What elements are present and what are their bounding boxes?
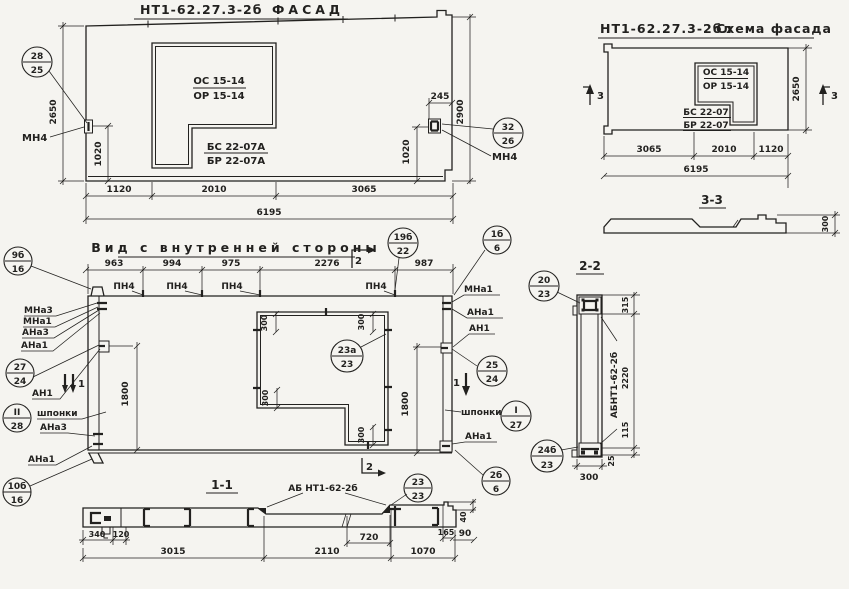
svg-text:2б: 2б: [490, 470, 503, 481]
facade-dim-left-height: 2650: [49, 22, 84, 185]
pn-label: ПН4: [113, 282, 134, 292]
svg-text:25: 25: [486, 361, 499, 371]
section-2-2-callout-20: 20 23: [529, 271, 580, 303]
svg-text:20: 20: [538, 276, 551, 286]
inner-callout-23-23: 23 23: [391, 474, 432, 505]
svg-text:1: 1: [78, 379, 85, 390]
svg-text:23: 23: [541, 461, 554, 471]
facade-dim-bottom: 1120 2010 3065 6195: [83, 182, 456, 224]
svg-text:19б: 19б: [394, 232, 413, 243]
facade-title-code: НТ1-62.27.3-2б: [140, 2, 262, 17]
svg-text:24: 24: [14, 377, 27, 387]
svg-text:I: I: [514, 406, 517, 416]
facade-dim-right-height: 2900: [452, 14, 476, 184]
svg-text:2220: 2220: [621, 366, 630, 389]
label-ana1: АНа1: [21, 341, 48, 351]
blueprint-sheet: НТ1-62.27.3-2б ФАСАД ОС 15-14 ОР 15-14 Б…: [0, 0, 849, 589]
inner-section-1-mark-right: 1: [453, 373, 470, 396]
inner-view: Вид с внутренней стороны 963 994 975 227…: [3, 226, 531, 506]
svg-text:3: 3: [597, 91, 604, 102]
callout-top: 28: [31, 52, 44, 62]
svg-text:2276: 2276: [314, 259, 339, 269]
beam-dim-bottom-chain: 3015 2110 1070: [80, 510, 458, 562]
section-3-3-view: 3-3 300: [604, 193, 840, 237]
svg-text:2650: 2650: [49, 99, 59, 124]
facade-window-mark-top: ОС 15-14: [193, 76, 244, 87]
section-2-2-title: 2-2: [579, 259, 601, 273]
facade-window-mark-bottom: ОР 15-14: [193, 91, 244, 102]
inner-lifting-hook-top: [91, 287, 104, 296]
label-ana1-low: АНа1: [28, 455, 55, 465]
schema-title-code: НТ1-62.27.3-2бл: [600, 21, 733, 36]
svg-text:2650: 2650: [792, 76, 802, 101]
facade-block-mark-bottom: БР 22-07А: [207, 156, 265, 167]
svg-text:975: 975: [222, 259, 241, 269]
inner-callout-19b: 19б 22: [388, 228, 418, 290]
svg-text:2110: 2110: [314, 547, 339, 557]
label-shponki-left: шпонки: [37, 409, 78, 419]
svg-text:1020: 1020: [94, 141, 104, 166]
section-2-2-callout-24b: 24б 23: [531, 440, 578, 472]
svg-text:6195: 6195: [683, 165, 708, 175]
schema-section-mark-right: 3: [819, 84, 838, 105]
section-2-2-beam-label: АБНТ1-62-2б: [609, 352, 620, 418]
svg-text:24б: 24б: [538, 445, 557, 456]
inner-title: Вид с внутренней стороны: [91, 240, 380, 255]
label-mna3: МНа3: [24, 306, 53, 316]
svg-text:1: 1: [453, 378, 460, 389]
svg-text:2: 2: [355, 256, 362, 267]
facade-block-mark-top: БС 22-07А: [207, 142, 265, 153]
svg-text:1070: 1070: [410, 547, 435, 557]
inner-callout-9b: 9б 16: [4, 247, 91, 289]
beam-joint-left: [258, 508, 266, 514]
facade-dim-left-offset: 1020: [93, 123, 113, 184]
svg-text:6: 6: [494, 244, 500, 254]
svg-text:25: 25: [607, 455, 616, 467]
inner-window-300-dims: 300 300 300 300: [260, 311, 376, 448]
beam-dim-720: 720: [344, 515, 393, 547]
label-an1-right: АН1: [469, 324, 490, 334]
facade-anchor-right-label: МН4: [492, 152, 517, 163]
section-3-3-profile: [604, 215, 786, 233]
svg-text:1120: 1120: [758, 145, 783, 155]
schema-dim-bottom: 3065 2010 1120 6195: [601, 132, 791, 188]
label-mna1-right: МНа1: [464, 285, 493, 295]
svg-text:6195: 6195: [256, 208, 281, 218]
svg-text:40: 40: [459, 511, 468, 523]
facade-anchor-right-leader: [442, 130, 491, 156]
svg-text:16: 16: [12, 265, 25, 275]
callout-top: 32: [502, 123, 515, 133]
inner-left-labels: МНа3 МНа1 АНа3 АНа1 АН1 шпонки АНа3 АНа1: [21, 303, 106, 465]
section-1-1-title: 1-1: [211, 478, 233, 492]
schema-block-mark-bottom: БР 22-07: [683, 121, 728, 131]
schema-window-mark-bottom: ОР 15-14: [703, 82, 749, 92]
inner-panel-inner-lines: [88, 296, 452, 453]
inner-section-1-mark-left: 1: [62, 374, 85, 393]
facade-title-word: ФАСАД: [272, 2, 344, 17]
beam-bracket-2: [184, 509, 190, 526]
section-2-2-bottom-foot: [572, 450, 577, 457]
svg-text:300: 300: [357, 426, 366, 443]
section-2-2-body-lines: [581, 314, 598, 443]
panel-drawing: НТ1-62.27.3-2б ФАСАД ОС 15-14 ОР 15-14 Б…: [0, 0, 849, 589]
section-2-2-view: 2-2 АБНТ1-62-2б 315 2220 115 25 300 20 2…: [529, 259, 640, 483]
inner-callout-10b: 10б 16: [3, 459, 92, 506]
callout-bottom: 25: [31, 66, 44, 76]
inner-callout-II-28: II 28: [3, 404, 31, 432]
facade-dim-245: 245: [426, 92, 455, 119]
svg-text:27: 27: [510, 421, 523, 431]
schema-view: НТ1-62.27.3-2бл Схема фасада ОС 15-14 ОР…: [583, 21, 840, 237]
beam-bracket-1: [144, 509, 150, 526]
section-3-3-title: 3-3: [701, 193, 723, 207]
svg-text:24: 24: [486, 375, 499, 385]
svg-text:27: 27: [14, 363, 27, 373]
inner-left-edge-marks: [93, 303, 107, 444]
svg-text:16: 16: [11, 496, 24, 506]
pn-label: ПН4: [166, 282, 187, 292]
beam-bracket-3: [248, 509, 254, 526]
svg-text:3: 3: [831, 91, 838, 102]
label-ana1-right-low: АНа1: [465, 432, 492, 442]
inner-dim-top: 963 994 975 2276 987: [83, 259, 456, 294]
inner-window-ticks: [253, 308, 392, 449]
section-2-2-top-anchor: [584, 301, 596, 310]
svg-text:23: 23: [341, 360, 354, 370]
schema-section-mark-left: 3: [583, 84, 604, 105]
schema-window-mark-top: ОС 15-14: [703, 68, 749, 78]
svg-text:3065: 3065: [351, 185, 376, 195]
svg-text:963: 963: [105, 259, 124, 269]
label-ana1-right: АНа1: [467, 308, 494, 318]
svg-text:300: 300: [260, 314, 269, 331]
label-shponki-right: шпонки: [461, 408, 502, 418]
label-an1: АН1: [32, 389, 53, 399]
beam-channel-glyph: [91, 513, 101, 523]
svg-text:2010: 2010: [711, 145, 736, 155]
svg-text:120: 120: [113, 530, 130, 539]
schema-title-word: Схема фасада: [716, 21, 832, 36]
inner-callout-2b-6: 2б 6: [455, 450, 510, 495]
section-3-3-thickness: 300: [821, 215, 830, 232]
svg-text:2010: 2010: [201, 185, 226, 195]
facade-dim-right-offset: 1020: [402, 124, 428, 184]
pn-label: ПН4: [221, 282, 242, 292]
inner-callout-23a: 23а 23: [331, 334, 386, 372]
beam-middle-joint: [342, 514, 351, 527]
inner-dim-1800-left: 1800: [109, 342, 140, 453]
inner-panel-outline: [88, 296, 452, 450]
svg-text:23а: 23а: [338, 346, 357, 356]
facade-view: НТ1-62.27.3-2б ФАСАД ОС 15-14 ОР 15-14 Б…: [22, 2, 523, 224]
inner-pn-anchors: ПН4 ПН4 ПН4 ПН4: [113, 282, 395, 297]
svg-text:720: 720: [360, 533, 379, 543]
svg-text:6: 6: [493, 485, 499, 495]
inner-callout-25: 25 24: [452, 349, 507, 386]
facade-panel-outline: [86, 11, 452, 182]
svg-text:90: 90: [459, 529, 472, 539]
svg-text:300: 300: [357, 313, 366, 330]
svg-text:300: 300: [580, 473, 599, 483]
svg-text:245: 245: [431, 92, 450, 102]
svg-text:23: 23: [412, 478, 425, 488]
svg-text:115: 115: [621, 421, 630, 438]
inner-section-2-mark-top: 2: [352, 247, 376, 269]
svg-text:23: 23: [538, 290, 551, 300]
inner-window-outline: [257, 312, 388, 445]
inner-window-inner-line: [261, 316, 385, 442]
beam-plate-glyph: [104, 516, 111, 521]
label-mna1: МНа1: [23, 317, 52, 327]
svg-text:10б: 10б: [8, 481, 27, 492]
svg-text:28: 28: [11, 422, 24, 432]
facade-anchor-left-leader: [50, 127, 84, 137]
beam-dims-small-left: 340 120: [79, 527, 130, 545]
svg-text:3015: 3015: [160, 547, 185, 557]
inner-dim-1800-right: 1800: [401, 343, 441, 456]
svg-text:340: 340: [89, 530, 106, 539]
svg-text:1800: 1800: [401, 391, 411, 416]
svg-text:2900: 2900: [456, 99, 466, 124]
schema-dim-right-height: 2650: [788, 44, 812, 134]
inner-lifting-hook-bottom: [89, 453, 103, 463]
svg-text:1120: 1120: [106, 185, 131, 195]
schema-block-mark-top: БС 22-07: [683, 108, 728, 118]
svg-text:9б: 9б: [12, 250, 25, 261]
section-2-2-top-foot: [573, 306, 577, 315]
facade-anchor-left-label: МН4: [22, 133, 47, 144]
section-1-1-beam-label: АБ НТ1-62-2б: [288, 483, 357, 494]
pn-label: ПН4: [365, 282, 386, 292]
svg-text:1800: 1800: [121, 381, 131, 406]
svg-text:3065: 3065: [636, 145, 661, 155]
beam-joint-right: [382, 505, 390, 513]
svg-text:II: II: [14, 408, 21, 418]
svg-text:23: 23: [412, 492, 425, 502]
svg-text:22: 22: [397, 247, 410, 257]
callout-bottom: 26: [502, 137, 515, 147]
svg-text:315: 315: [621, 296, 630, 313]
facade-callout-32-26: 32 26: [442, 118, 523, 148]
beam-bracket-4: [432, 508, 438, 525]
label-ana3-low: АНа3: [40, 423, 67, 433]
svg-text:2: 2: [366, 462, 373, 473]
svg-text:1020: 1020: [402, 139, 412, 164]
section-1-1-label-leaders: [267, 493, 386, 507]
svg-text:1б: 1б: [491, 229, 504, 240]
svg-text:994: 994: [163, 259, 182, 269]
label-ana3: АНа3: [22, 328, 49, 338]
svg-text:987: 987: [415, 259, 434, 269]
section-2-mark-bottom: 2: [362, 458, 386, 477]
svg-text:165: 165: [438, 528, 455, 537]
inner-callout-I-27: I 27: [501, 401, 531, 431]
svg-text:300: 300: [261, 389, 270, 406]
